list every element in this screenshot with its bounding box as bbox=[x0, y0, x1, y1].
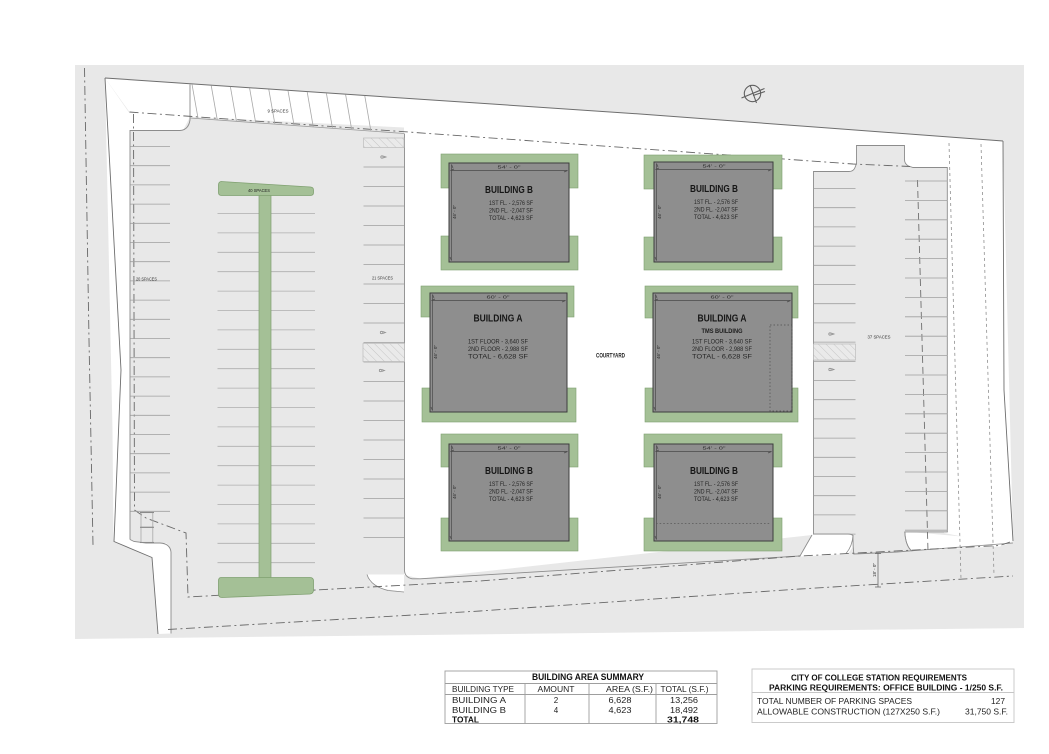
svg-text:TOTAL - 4,623 SF: TOTAL - 4,623 SF bbox=[694, 214, 738, 221]
svg-text:2ND FL. -2,047 SF: 2ND FL. -2,047 SF bbox=[694, 206, 738, 213]
svg-text:2ND FLOOR - 2,988 SF: 2ND FLOOR - 2,988 SF bbox=[692, 346, 752, 353]
svg-text:BUILDING TYPE: BUILDING TYPE bbox=[452, 685, 514, 694]
svg-text:1ST FLOOR - 3,640 SF: 1ST FLOOR - 3,640 SF bbox=[468, 339, 528, 346]
svg-text:AREA (S.F.): AREA (S.F.) bbox=[606, 685, 653, 694]
svg-text:2ND FL. -2,047 SF: 2ND FL. -2,047 SF bbox=[489, 488, 533, 495]
svg-text:1ST FL. - 2,576 SF: 1ST FL. - 2,576 SF bbox=[694, 481, 738, 488]
svg-text:COURTYARD: COURTYARD bbox=[596, 353, 625, 360]
svg-text:40 SPACES: 40 SPACES bbox=[248, 188, 270, 193]
svg-text:60' - 0": 60' - 0" bbox=[711, 294, 735, 299]
svg-text:TOTAL NUMBER OF PARKING SPACES: TOTAL NUMBER OF PARKING SPACES bbox=[757, 696, 912, 706]
svg-text:TOTAL (S.F.): TOTAL (S.F.) bbox=[661, 685, 709, 694]
svg-text:46' - 0": 46' - 0" bbox=[657, 485, 662, 499]
svg-text:18' - 0": 18' - 0" bbox=[872, 563, 877, 577]
svg-text:BUILDING B: BUILDING B bbox=[485, 185, 533, 196]
svg-text:2ND FLOOR - 2,988 SF: 2ND FLOOR - 2,988 SF bbox=[468, 346, 528, 353]
svg-text:BUILDING A: BUILDING A bbox=[452, 696, 507, 705]
svg-text:20 SPACES: 20 SPACES bbox=[136, 277, 157, 283]
svg-text:TOTAL - 4,623 SF: TOTAL - 4,623 SF bbox=[489, 215, 533, 222]
svg-text:CITY OF COLLEGE STATION REQUIR: CITY OF COLLEGE STATION REQUIREMENTS bbox=[791, 673, 967, 683]
svg-text:2ND FL. -2,047 SF: 2ND FL. -2,047 SF bbox=[489, 207, 533, 214]
svg-text:TMS BUILDING: TMS BUILDING bbox=[702, 328, 743, 335]
svg-text:54' - 0": 54' - 0" bbox=[498, 164, 522, 169]
svg-text:1ST FL. - 2,576 SF: 1ST FL. - 2,576 SF bbox=[489, 200, 533, 207]
svg-text:TOTAL - 4,623 SF: TOTAL - 4,623 SF bbox=[489, 496, 533, 503]
svg-text:BUILDING B: BUILDING B bbox=[485, 466, 533, 477]
svg-text:54' - 0": 54' - 0" bbox=[703, 163, 727, 168]
svg-text:60' - 0": 60' - 0" bbox=[487, 294, 511, 299]
svg-text:AMOUNT: AMOUNT bbox=[538, 685, 575, 694]
svg-text:TOTAL - 6,628 SF: TOTAL - 6,628 SF bbox=[468, 354, 528, 361]
svg-text:BUILDING AREA SUMMARY: BUILDING AREA SUMMARY bbox=[532, 672, 644, 682]
svg-text:37 SPACES: 37 SPACES bbox=[868, 335, 891, 341]
svg-text:BUILDING A: BUILDING A bbox=[698, 314, 747, 325]
svg-text:46' - 0": 46' - 0" bbox=[452, 485, 457, 499]
svg-text:4,623: 4,623 bbox=[609, 706, 633, 715]
svg-text:127: 127 bbox=[991, 696, 1005, 706]
svg-text:46' - 0": 46' - 0" bbox=[433, 345, 438, 359]
svg-text:TOTAL - 4,623 SF: TOTAL - 4,623 SF bbox=[694, 496, 738, 503]
svg-text:31,748: 31,748 bbox=[667, 715, 699, 725]
svg-text:ALLOWABLE CONSTRUCTION (127X25: ALLOWABLE CONSTRUCTION (127X250 S.F.) bbox=[757, 707, 940, 717]
svg-text:1ST FL. - 2,576 SF: 1ST FL. - 2,576 SF bbox=[489, 481, 533, 488]
svg-text:1ST FLOOR - 3,640 SF: 1ST FLOOR - 3,640 SF bbox=[692, 339, 752, 346]
svg-text:46' - 0": 46' - 0" bbox=[657, 205, 662, 219]
svg-text:31,750 S.F.: 31,750 S.F. bbox=[965, 707, 1008, 717]
svg-text:BUILDING B: BUILDING B bbox=[690, 184, 738, 195]
svg-text:BUILDING B: BUILDING B bbox=[690, 466, 738, 477]
svg-text:1ST FL. - 2,576 SF: 1ST FL. - 2,576 SF bbox=[694, 199, 738, 206]
svg-text:21 SPACES: 21 SPACES bbox=[372, 276, 393, 282]
svg-text:9 SPACES: 9 SPACES bbox=[268, 109, 289, 115]
svg-text:54' - 0": 54' - 0" bbox=[498, 445, 522, 450]
svg-text:TOTAL - 6,628 SF: TOTAL - 6,628 SF bbox=[692, 354, 752, 361]
svg-text:PARKING REQUIREMENTS: OFFICE B: PARKING REQUIREMENTS: OFFICE BUILDING - … bbox=[769, 683, 1003, 693]
svg-text:2ND FL. -2,047 SF: 2ND FL. -2,047 SF bbox=[694, 488, 738, 495]
svg-text:46' - 0": 46' - 0" bbox=[656, 345, 661, 359]
svg-text:BUILDING A: BUILDING A bbox=[474, 314, 523, 325]
svg-text:46' - 0": 46' - 0" bbox=[452, 205, 457, 219]
svg-text:6,628: 6,628 bbox=[609, 696, 633, 705]
svg-text:2: 2 bbox=[554, 696, 559, 705]
svg-text:54' - 0": 54' - 0" bbox=[703, 445, 727, 450]
svg-text:4: 4 bbox=[554, 706, 559, 715]
svg-text:13,256: 13,256 bbox=[670, 696, 699, 705]
svg-text:TOTAL: TOTAL bbox=[452, 715, 479, 725]
